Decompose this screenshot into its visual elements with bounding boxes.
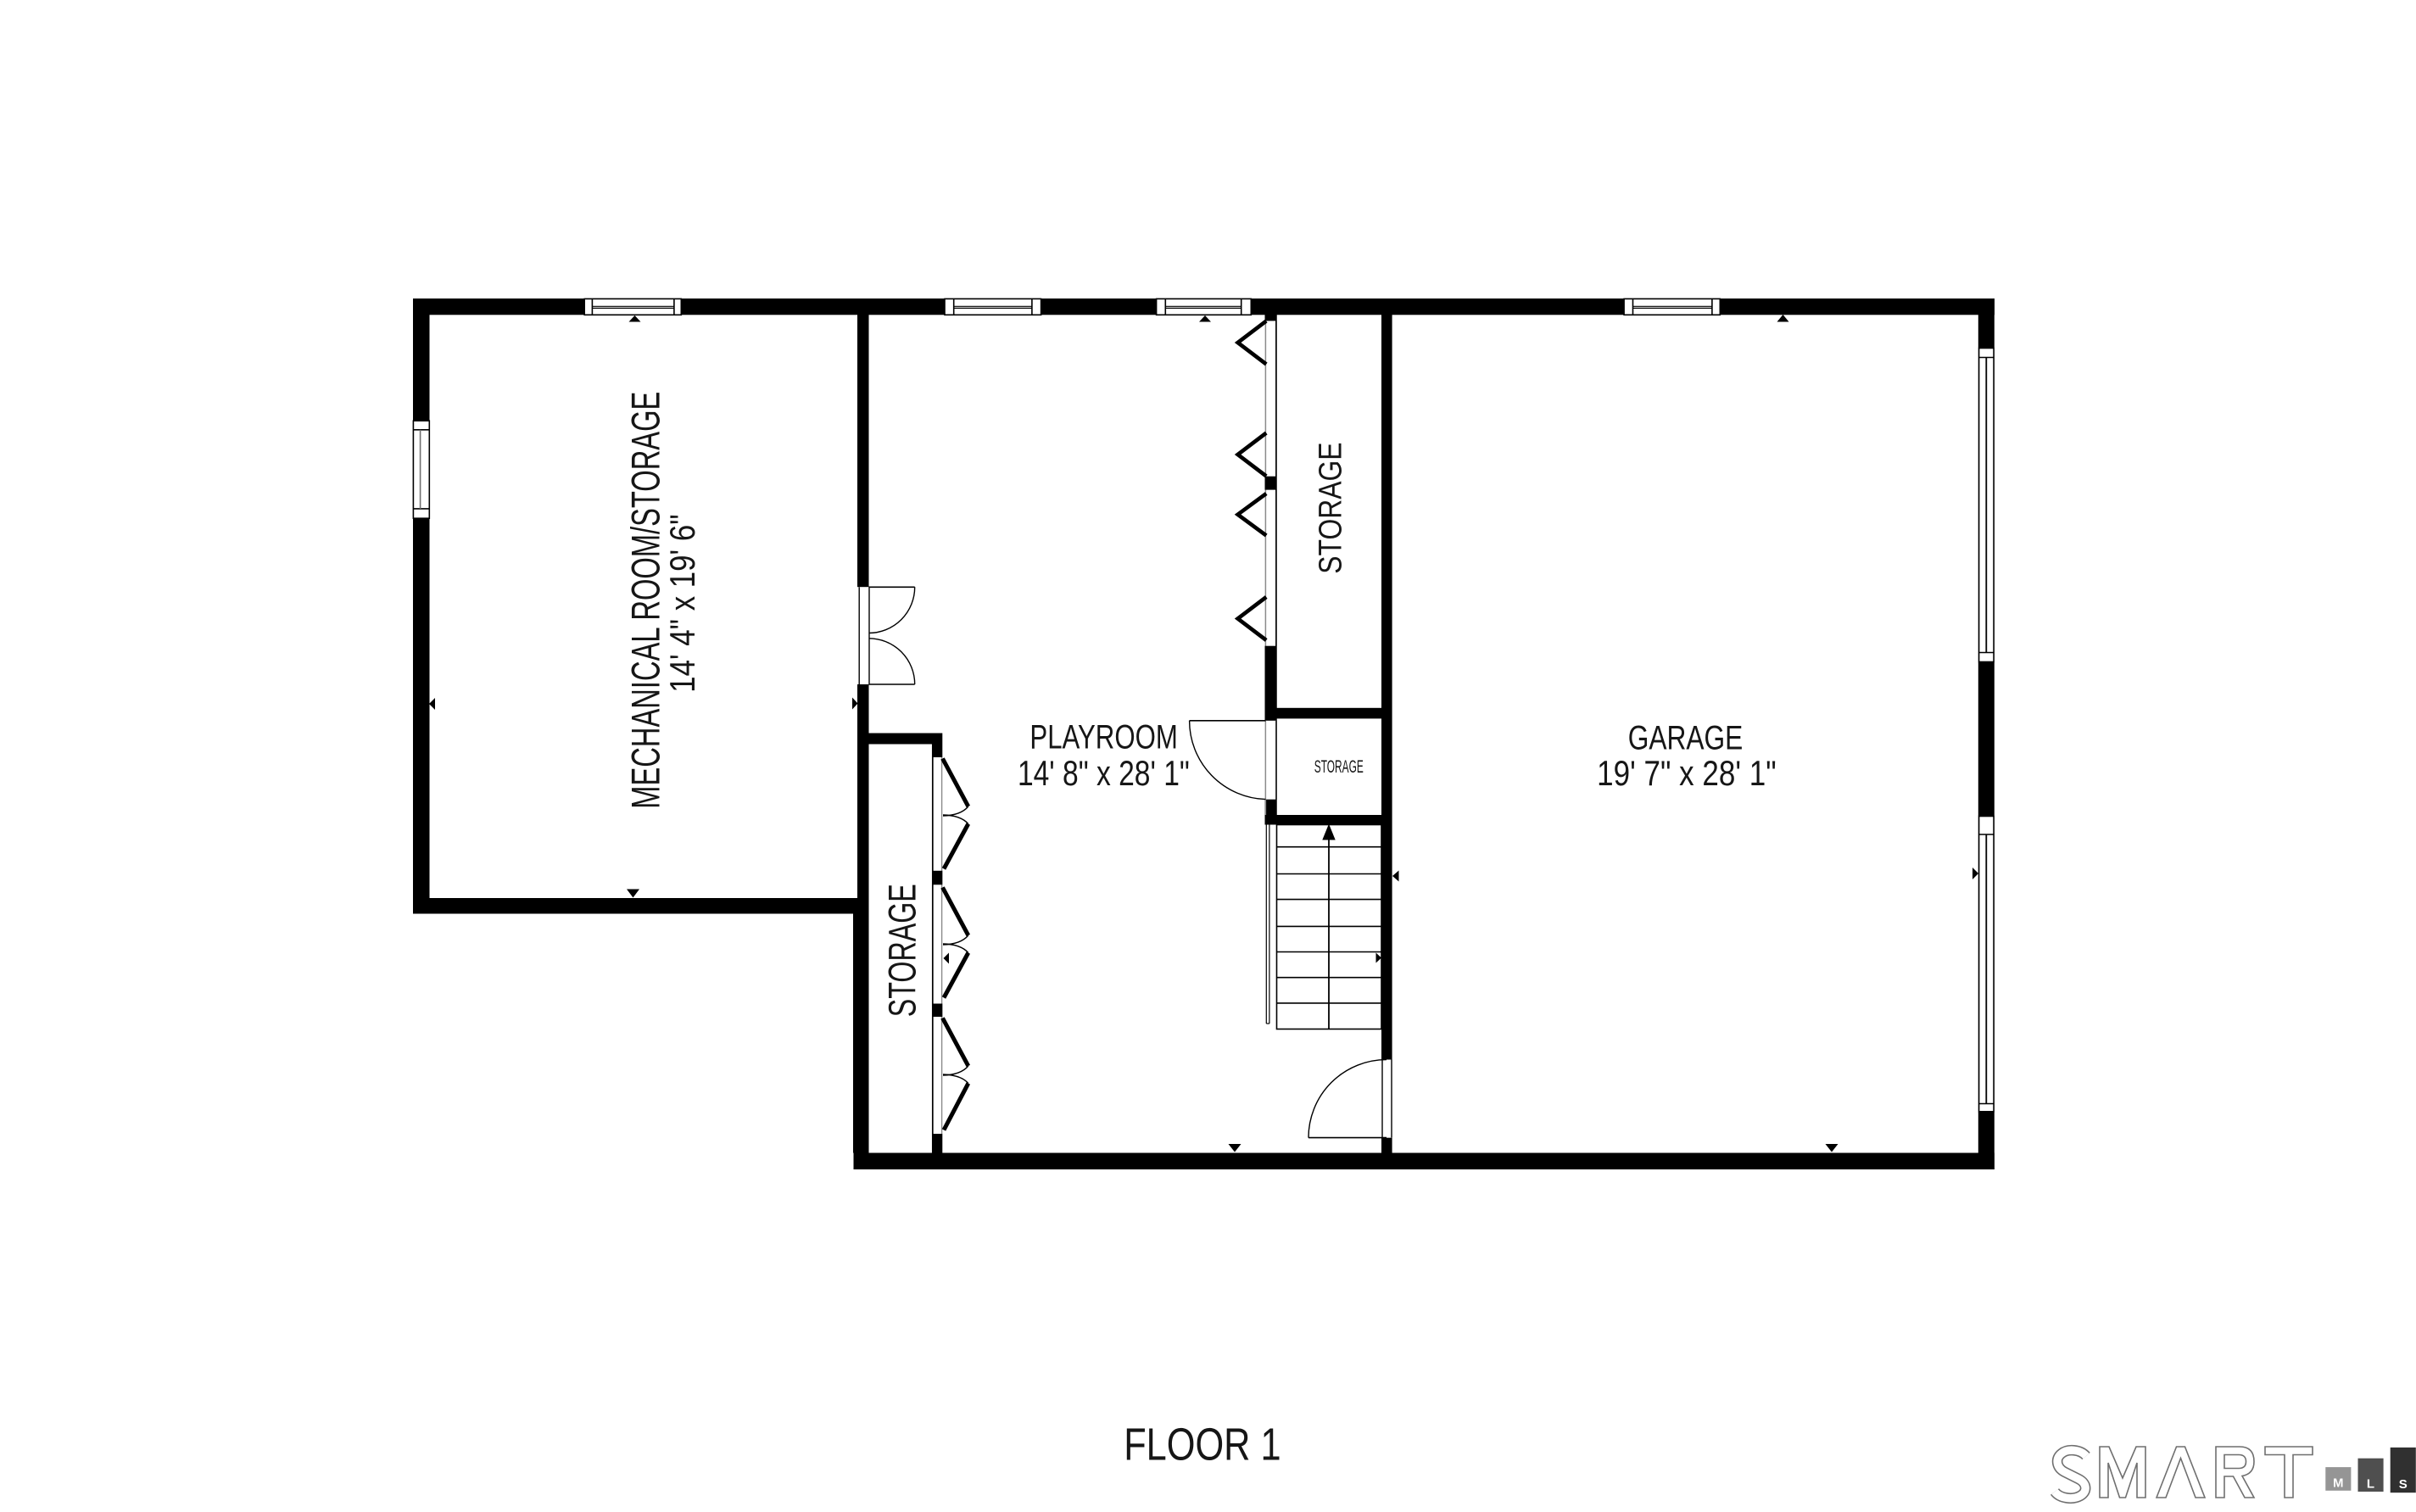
svg-text:GARAGE: GARAGE <box>1628 719 1744 756</box>
svg-text:14' 8" x 28' 1": 14' 8" x 28' 1" <box>1018 753 1190 793</box>
svg-text:STORAGE: STORAGE <box>1314 443 1349 574</box>
svg-text:STORAGE: STORAGE <box>1314 757 1364 777</box>
svg-text:PLAYROOM: PLAYROOM <box>1029 719 1177 756</box>
svg-text:MECHANICAL ROOM/STORAGE: MECHANICAL ROOM/STORAGE <box>622 392 667 809</box>
svg-text:FLOOR 1: FLOOR 1 <box>1124 1419 1281 1470</box>
svg-text:L: L <box>2367 1477 2374 1492</box>
svg-text:19' 7" x 28' 1": 19' 7" x 28' 1" <box>1597 753 1777 793</box>
svg-text:S: S <box>2399 1477 2408 1492</box>
svg-text:M: M <box>2333 1476 2344 1491</box>
svg-text:STORAGE: STORAGE <box>881 884 924 1017</box>
svg-text:14' 4" x 19' 6": 14' 4" x 19' 6" <box>662 514 702 692</box>
